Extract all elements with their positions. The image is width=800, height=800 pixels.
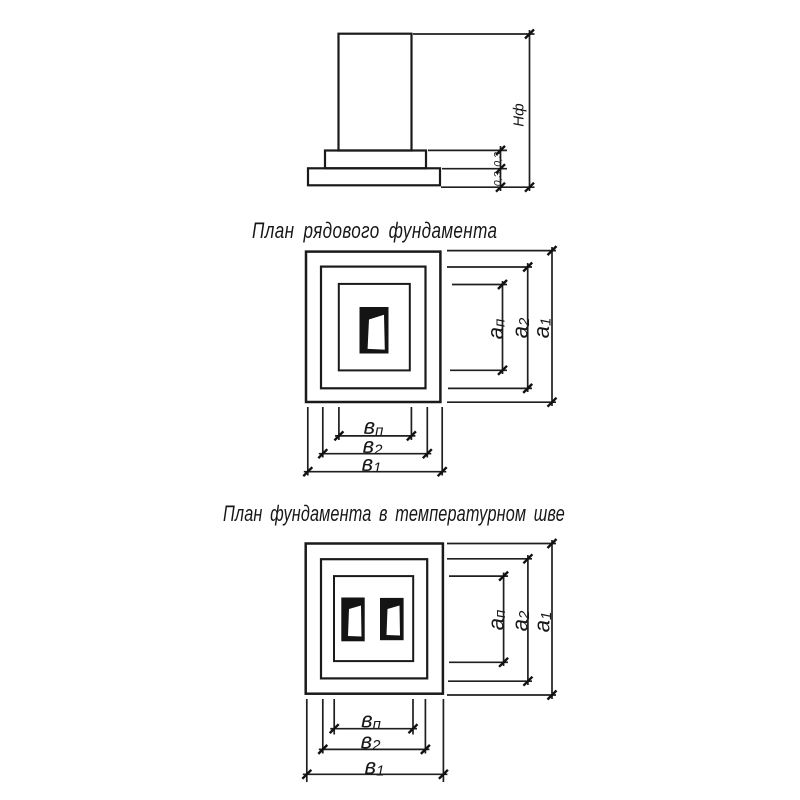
svg-text:Нф: Нф <box>511 103 528 127</box>
svg-text:План рядового фундамента: План рядового фундамента <box>252 219 497 244</box>
svg-text:0,3: 0,3 <box>492 152 504 167</box>
svg-text:0,3: 0,3 <box>492 172 504 187</box>
svg-text:План фундамента в температурно: План фундамента в температурном шве <box>223 502 565 527</box>
